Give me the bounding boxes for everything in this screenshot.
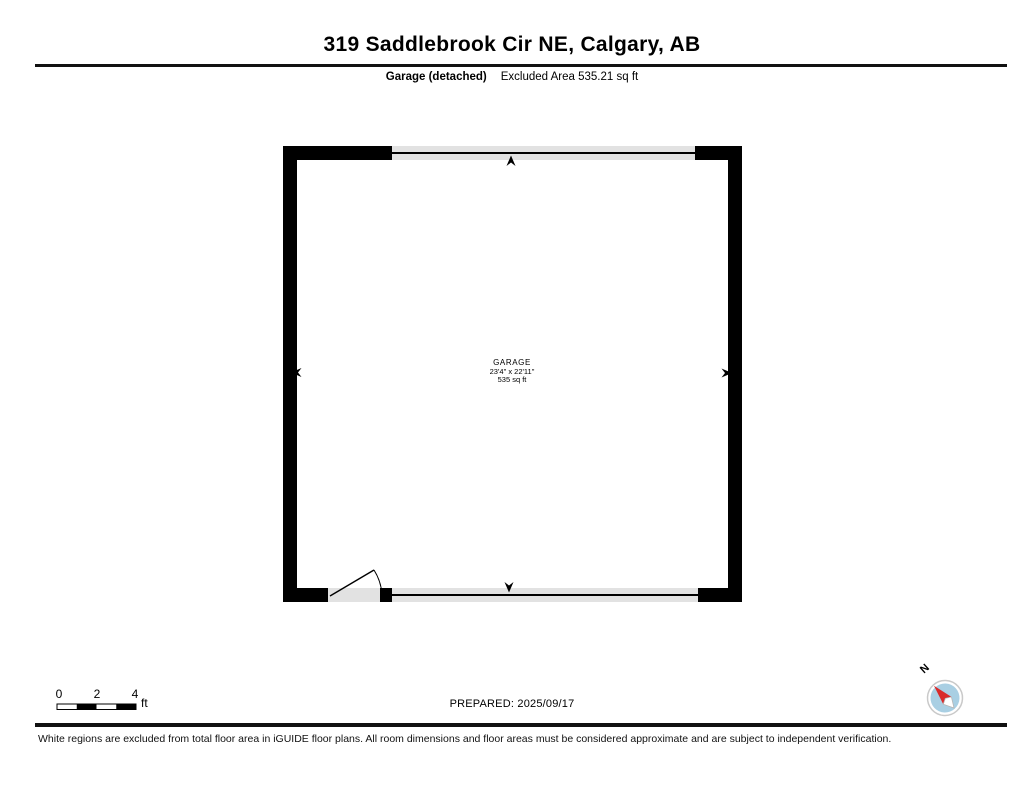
wall-right <box>728 146 742 602</box>
wall-top-right-segment <box>695 146 742 160</box>
wall-bottom-right-segment <box>698 588 742 602</box>
wall-bottom-left-segment <box>283 588 328 602</box>
wall-top-left-segment <box>283 146 392 160</box>
floor-plan-page: 319 Saddlebrook Cir NE, Calgary, AB Gara… <box>0 0 1024 791</box>
prepared-date: PREPARED: 2025/09/17 <box>0 698 1024 710</box>
garage-door-top <box>392 146 695 160</box>
room-label: GARAGE 23'4" x 22'11" 535 sq ft <box>412 359 612 384</box>
garage-door-bottom <box>392 588 698 602</box>
entry-door <box>328 570 382 602</box>
floor-plan-drawing <box>0 0 1024 791</box>
footer-divider <box>35 723 1007 727</box>
room-area: 535 sq ft <box>412 376 612 384</box>
disclaimer-text: White regions are excluded from total fl… <box>38 733 998 745</box>
room-name: GARAGE <box>412 359 612 367</box>
entry-door-opening <box>328 588 380 602</box>
